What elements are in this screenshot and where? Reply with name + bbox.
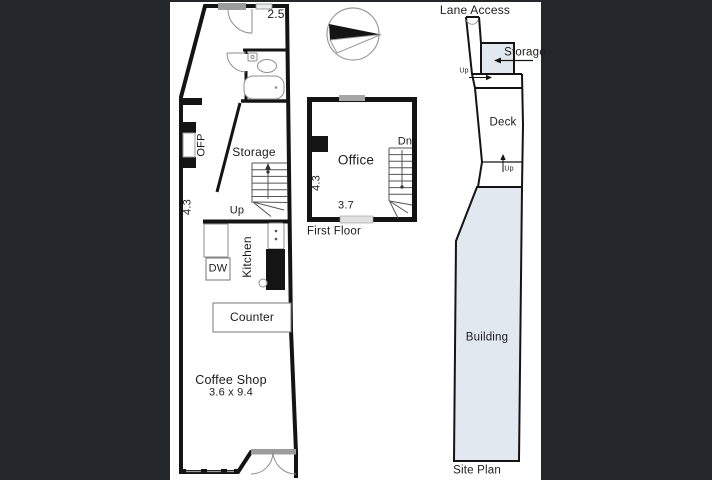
- ff-dim-bottom: 3.7: [338, 201, 354, 212]
- ff-dim-left: 4.3: [312, 175, 323, 191]
- gf-room-label: Coffee Shop: [195, 374, 266, 387]
- fridge: [266, 249, 285, 290]
- ff-room-label: Office: [338, 153, 374, 167]
- gf-dim-left: 4.3: [183, 199, 194, 215]
- floorplan-drawing: [0, 0, 712, 480]
- chimney: [312, 136, 328, 152]
- kitchen-sink: [259, 279, 267, 287]
- site-plan: [454, 17, 533, 461]
- gf-kitchen-label: Kitchen: [241, 236, 253, 277]
- cooktop: [268, 223, 284, 249]
- north-arrow: [327, 8, 381, 60]
- ff-window-bottom: [340, 216, 373, 223]
- sp-up-label-top: Up: [459, 68, 468, 75]
- bathtub: [244, 76, 284, 99]
- sp-deck-label: Deck: [489, 117, 516, 129]
- sp-lane-label: Lane Access: [440, 4, 510, 16]
- gf-room-dims: 3.6 x 9.4: [209, 388, 253, 399]
- site-plan-caption: Site Plan: [453, 465, 501, 477]
- ff-dn-label: Dn: [398, 137, 412, 148]
- gf-counter-label: Counter: [230, 311, 274, 323]
- gf-dw-label: DW: [209, 264, 228, 275]
- gf-dim-top: 2.5: [267, 8, 284, 20]
- gf-storage-label: Storage: [232, 146, 275, 158]
- first-floor-caption: First Floor: [307, 226, 361, 238]
- sp-up-label-mid: Up: [504, 166, 513, 173]
- building-footprint: [454, 187, 522, 461]
- ff-window-top: [339, 95, 365, 101]
- sp-storage-label: Storage: [504, 47, 546, 59]
- entry-double-doors: [251, 449, 296, 474]
- gf-up-label: Up: [230, 206, 244, 217]
- window-top-left: [218, 3, 246, 10]
- sp-building-label: Building: [466, 332, 509, 344]
- gf-ofp-label: OFP: [197, 133, 208, 156]
- kitchen-bench: [204, 224, 228, 257]
- lane-gate-swing: [467, 20, 479, 24]
- ground-floor-plan: [179, 3, 296, 478]
